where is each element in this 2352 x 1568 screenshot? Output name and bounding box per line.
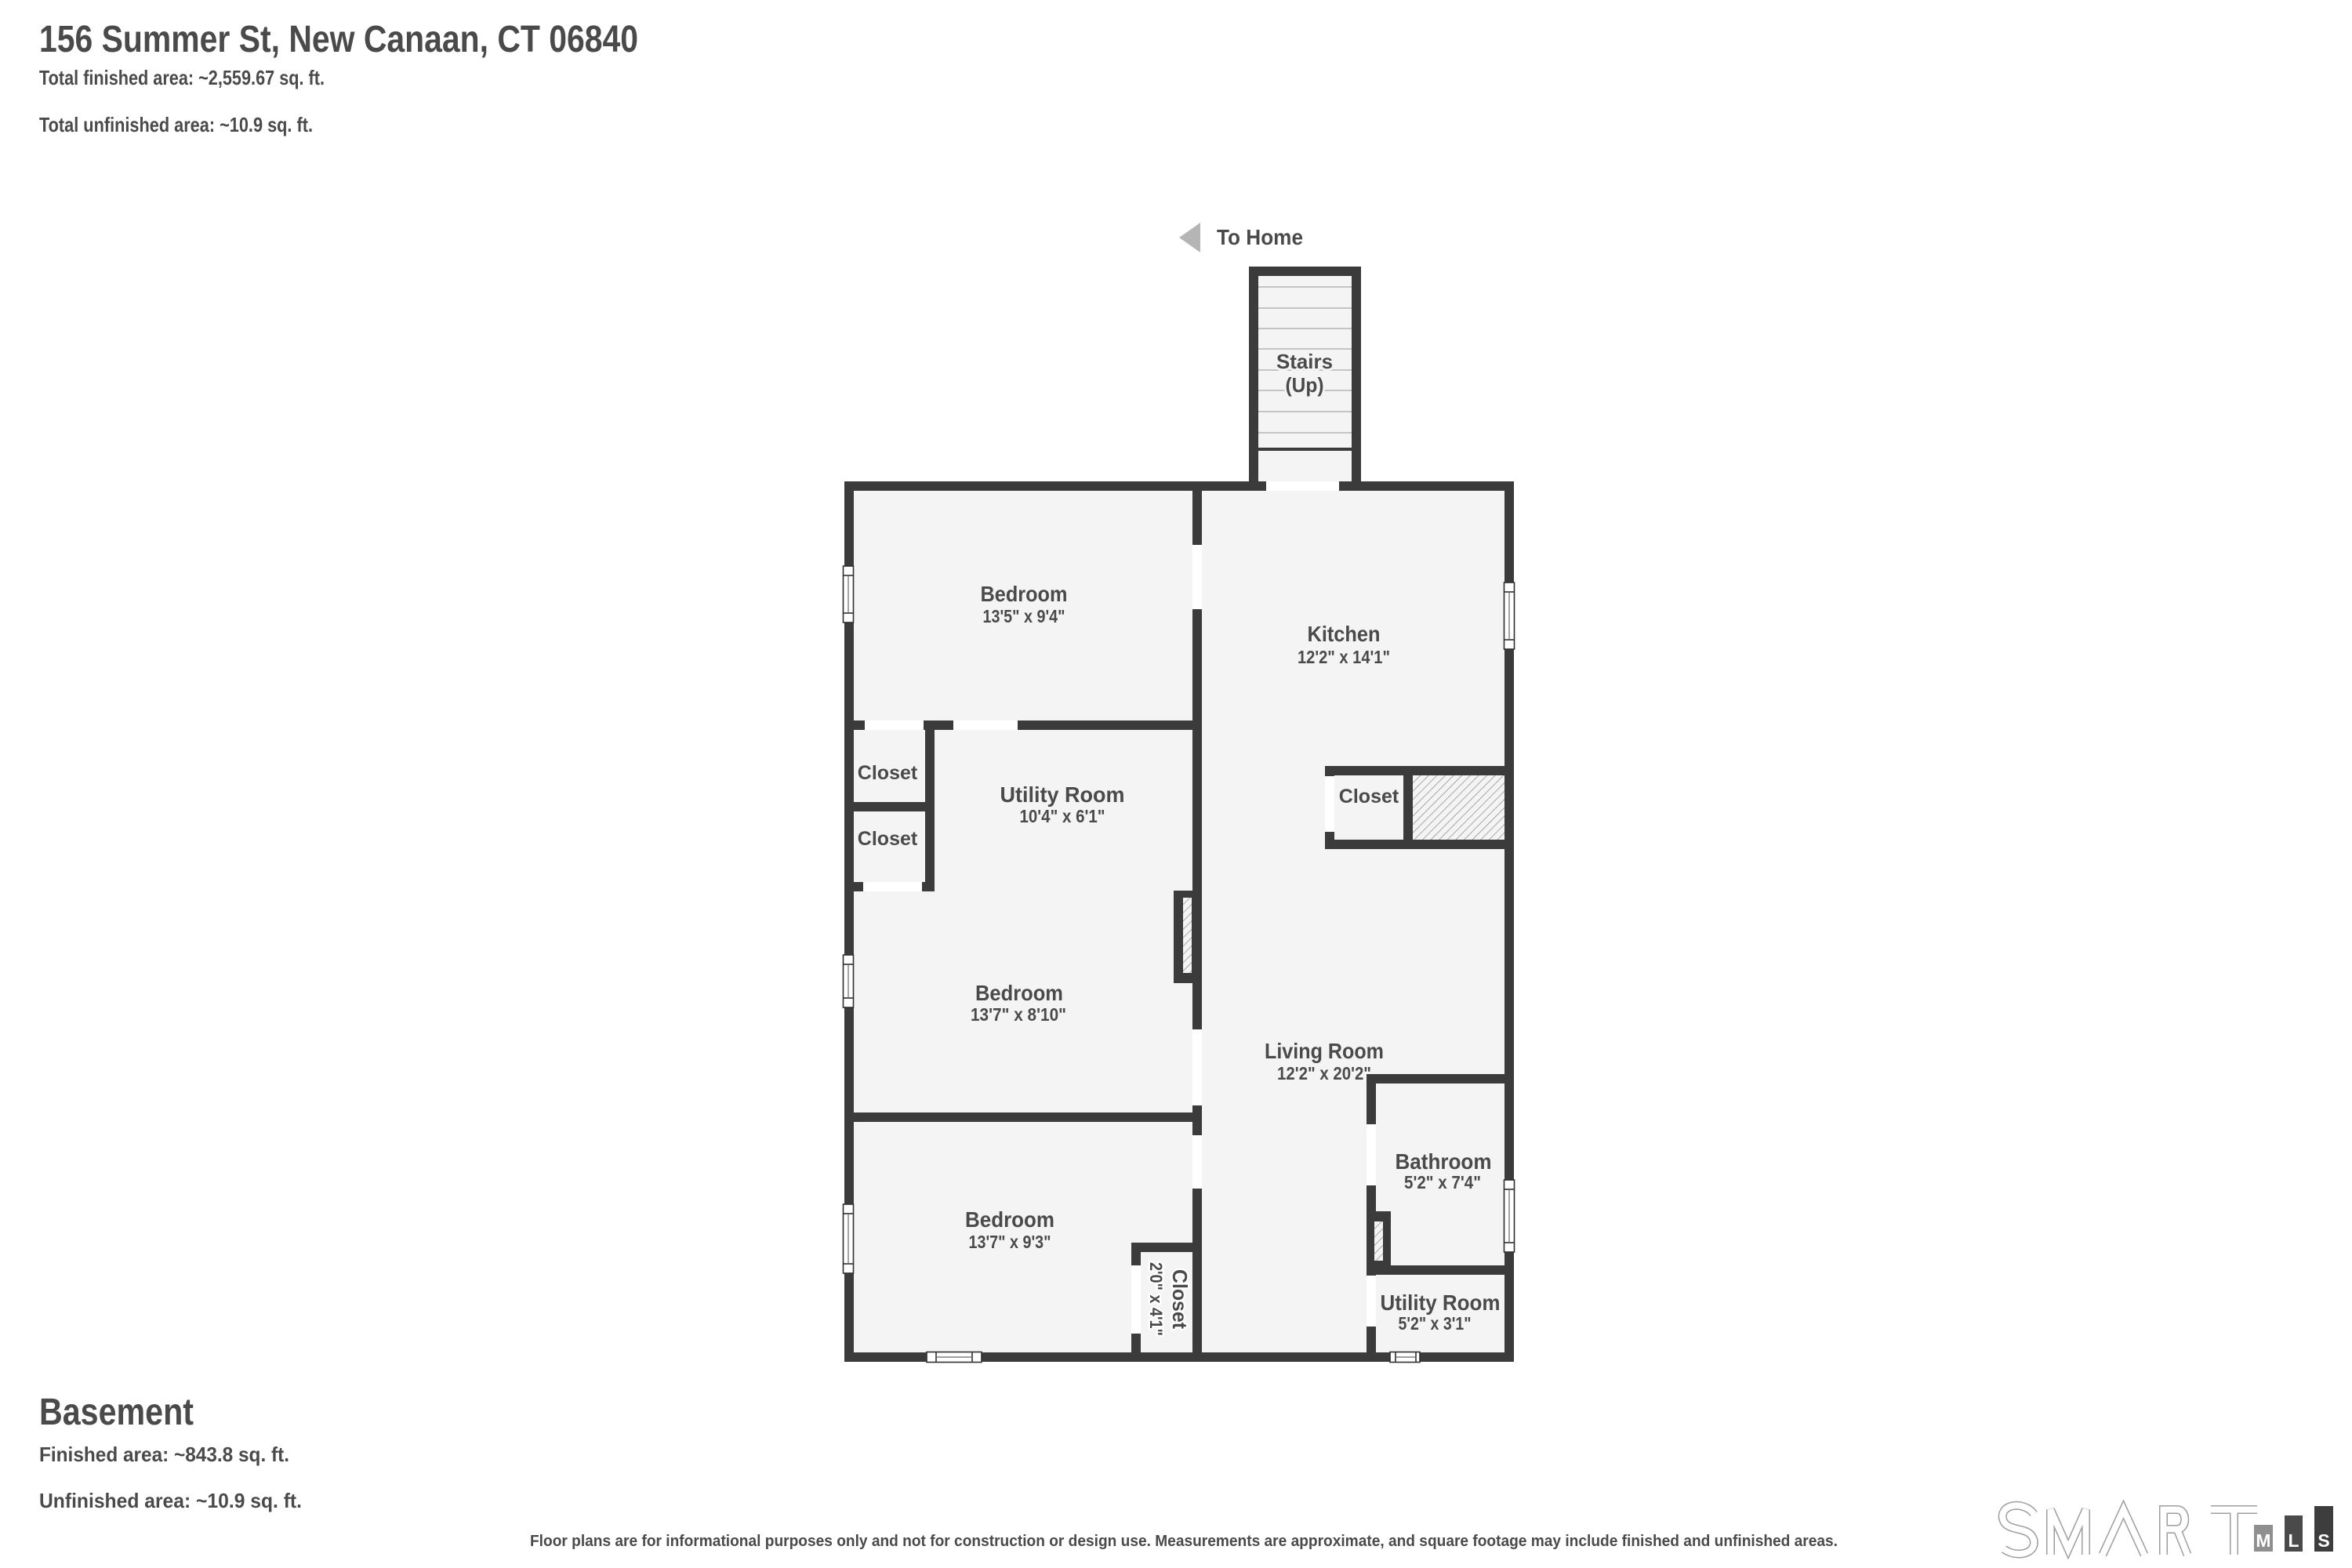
svg-text:Finished area: ~843.8 sq. ft.: Finished area: ~843.8 sq. ft. <box>39 1443 289 1466</box>
svg-text:156 Summer St, New Canaan, CT: 156 Summer St, New Canaan, CT 06840 <box>39 19 638 60</box>
svg-text:Bedroom: Bedroom <box>981 582 1068 606</box>
svg-text:Closet: Closet <box>858 828 918 850</box>
svg-text:12'2" x 14'1": 12'2" x 14'1" <box>1298 647 1390 667</box>
svg-text:13'7" x 9'3": 13'7" x 9'3" <box>969 1232 1051 1252</box>
svg-text:13'7" x 8'10": 13'7" x 8'10" <box>971 1004 1066 1025</box>
svg-text:Kitchen: Kitchen <box>1308 622 1381 646</box>
svg-text:(Up): (Up) <box>1286 373 1324 397</box>
svg-text:Bedroom: Bedroom <box>965 1207 1054 1232</box>
svg-text:Basement: Basement <box>39 1392 194 1433</box>
svg-text:5'2" x 3'1": 5'2" x 3'1" <box>1399 1313 1472 1334</box>
svg-text:Closet: Closet <box>858 762 918 784</box>
svg-text:13'5" x 9'4": 13'5" x 9'4" <box>983 606 1065 626</box>
svg-text:Utility Room: Utility Room <box>1000 782 1125 807</box>
svg-text:To Home: To Home <box>1217 225 1303 249</box>
svg-text:Utility Room: Utility Room <box>1381 1290 1501 1315</box>
svg-text:12'2" x 20'2": 12'2" x 20'2" <box>1277 1063 1371 1083</box>
svg-text:M: M <box>2256 1530 2270 1551</box>
svg-text:Floor plans are for informatio: Floor plans are for informational purpos… <box>530 1533 1838 1550</box>
svg-text:S: S <box>2318 1530 2329 1551</box>
svg-text:Unfinished area: ~10.9 sq. ft.: Unfinished area: ~10.9 sq. ft. <box>39 1489 302 1512</box>
svg-text:Closet: Closet <box>1339 786 1399 808</box>
svg-text:2'0" x 4'1": 2'0" x 4'1" <box>1146 1262 1166 1336</box>
svg-text:Living Room: Living Room <box>1265 1039 1384 1063</box>
svg-text:Stairs: Stairs <box>1276 350 1333 373</box>
svg-text:Bedroom: Bedroom <box>975 981 1063 1005</box>
svg-text:Total finished area: ~2,559.67: Total finished area: ~2,559.67 sq. ft. <box>39 66 325 89</box>
svg-text:L: L <box>2288 1530 2299 1551</box>
svg-text:10'4" x 6'1": 10'4" x 6'1" <box>1020 806 1105 826</box>
svg-text:Closet: Closet <box>1168 1269 1192 1329</box>
svg-text:Bathroom: Bathroom <box>1396 1149 1492 1174</box>
svg-text:Total unfinished area: ~10.9 s: Total unfinished area: ~10.9 sq. ft. <box>39 113 313 136</box>
svg-text:5'2" x 7'4": 5'2" x 7'4" <box>1404 1172 1481 1192</box>
